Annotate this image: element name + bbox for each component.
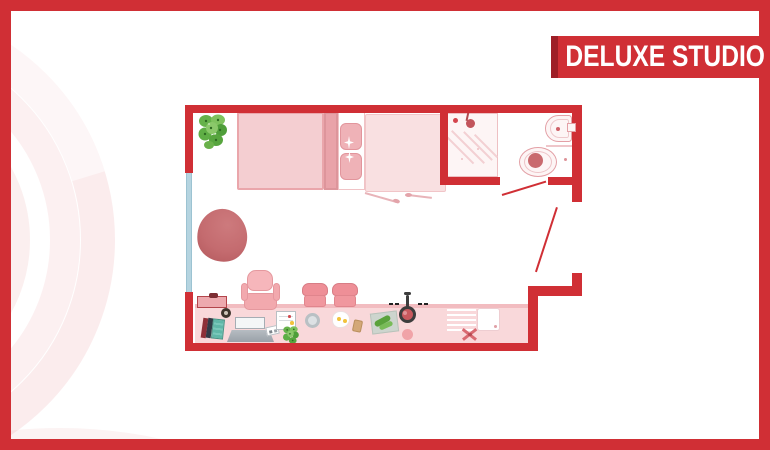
banner-accent-strip [551,36,558,78]
floorplan-page: DELUXE STUDIO [0,0,770,450]
page-title: DELUXE STUDIO [558,36,765,78]
plan-title-banner: DELUXE STUDIO [551,36,760,78]
